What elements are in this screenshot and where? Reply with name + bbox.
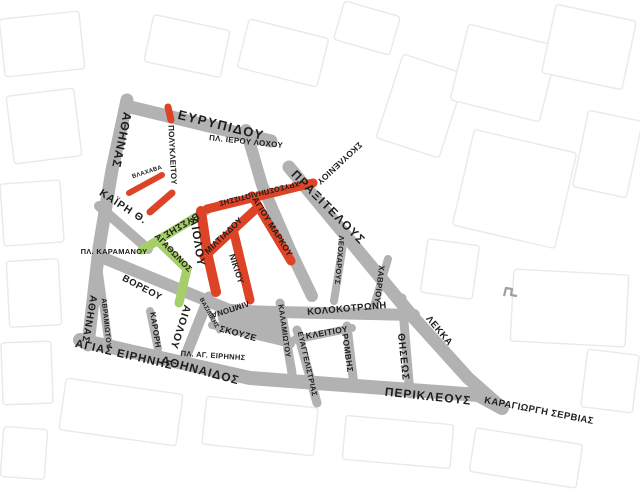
athens-street-map: ΕΥΡΥΠΙΔΟΥΠΛ. ΙΕΡΟΥ ΛΟΧΟΥΑΘΗΝΑΣΑΘΗΝΑΣΠΟΛΥ…	[0, 0, 640, 494]
basemap-block	[342, 415, 453, 468]
basemap-block	[6, 88, 82, 164]
basemap-block	[452, 129, 576, 248]
street-network-canvas: ΕΥΡΥΠΙΔΟΥΠΛ. ΙΕΡΟΥ ΛΟΧΟΥΑΘΗΝΑΣΑΘΗΝΑΣΠΟΛΥ…	[0, 0, 640, 494]
basemap-block	[542, 4, 637, 90]
street-polykleitou-lower	[150, 193, 172, 212]
basemap-block	[0, 180, 64, 246]
basemap-block	[334, 1, 401, 55]
basemap-block	[0, 11, 85, 77]
basemap-block	[202, 396, 318, 455]
basemap-block	[6, 259, 61, 328]
basemap-block	[510, 269, 629, 347]
street-label-leocharous: ΛΕΟΧΑΡΟΥΣ	[333, 235, 346, 285]
basemap-block	[59, 378, 183, 446]
basemap-block	[144, 14, 230, 77]
basemap-block	[0, 427, 47, 480]
street-polykleitou-upper	[168, 107, 171, 120]
basemap-block	[581, 349, 640, 413]
basemap-block	[376, 54, 466, 158]
basemap-block	[1, 341, 53, 405]
basemap-block	[469, 428, 583, 488]
basemap-block	[572, 110, 640, 198]
basemap-block	[450, 24, 558, 122]
street-label-pl-karamanou: ΠΛ. ΚΑΡΑΜΑΝΟΥ	[81, 247, 148, 256]
basemap-block	[420, 239, 479, 300]
street-label-polykleitou: ΠΟΛΥΚΛΕΙΤΟΥ	[166, 125, 178, 186]
street-label-skouleniou: ΣΚΟΥΛΕΝΙΟΥ	[315, 140, 364, 187]
street-label-romvis: ΡΟΜΒΗΣ	[340, 333, 355, 373]
street-label-agathonos: ΑΓΑΘΩΝΟΣ	[153, 231, 195, 274]
basemap-block	[237, 19, 329, 87]
